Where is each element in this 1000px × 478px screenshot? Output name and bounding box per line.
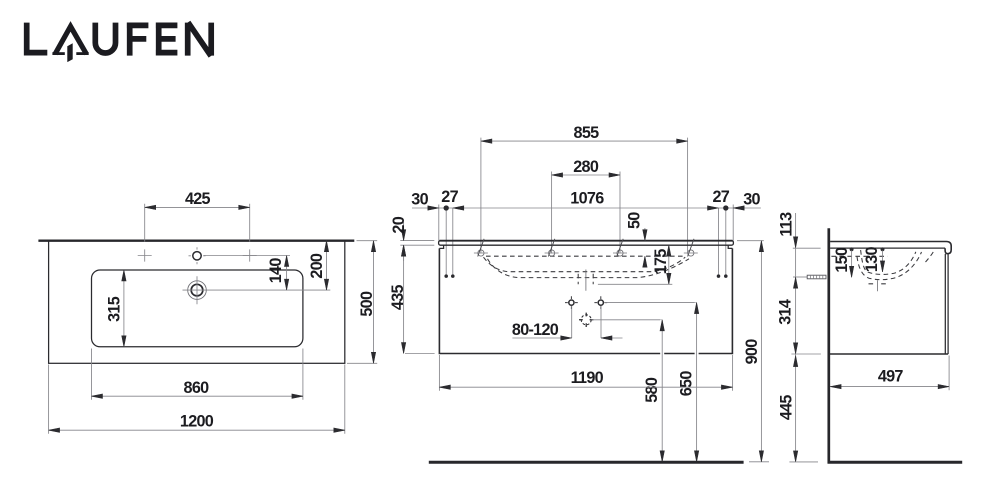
- svg-text:497: 497: [878, 368, 904, 386]
- svg-text:175: 175: [652, 249, 670, 275]
- svg-text:580: 580: [643, 377, 661, 403]
- svg-text:314: 314: [777, 299, 795, 325]
- svg-text:20: 20: [390, 216, 408, 233]
- svg-text:30: 30: [411, 190, 428, 208]
- svg-text:500: 500: [358, 291, 376, 317]
- svg-text:425: 425: [185, 190, 211, 208]
- svg-text:280: 280: [573, 158, 599, 176]
- svg-text:113: 113: [777, 212, 795, 237]
- svg-text:445: 445: [777, 395, 795, 421]
- svg-text:27: 27: [441, 188, 458, 206]
- svg-text:1076: 1076: [570, 189, 604, 207]
- svg-text:650: 650: [678, 371, 696, 397]
- svg-text:200: 200: [308, 253, 326, 279]
- svg-text:1200: 1200: [180, 413, 214, 431]
- svg-text:900: 900: [743, 339, 761, 365]
- svg-text:30: 30: [743, 191, 760, 209]
- svg-text:315: 315: [105, 296, 123, 322]
- svg-text:27: 27: [712, 188, 729, 206]
- svg-text:435: 435: [389, 284, 407, 310]
- svg-text:80-120: 80-120: [512, 321, 559, 339]
- svg-text:50: 50: [626, 212, 644, 229]
- svg-text:150: 150: [833, 247, 851, 273]
- svg-text:1190: 1190: [571, 369, 604, 387]
- svg-text:855: 855: [574, 124, 600, 142]
- svg-text:130: 130: [863, 246, 881, 272]
- svg-text:140: 140: [267, 258, 285, 284]
- svg-text:860: 860: [184, 379, 210, 397]
